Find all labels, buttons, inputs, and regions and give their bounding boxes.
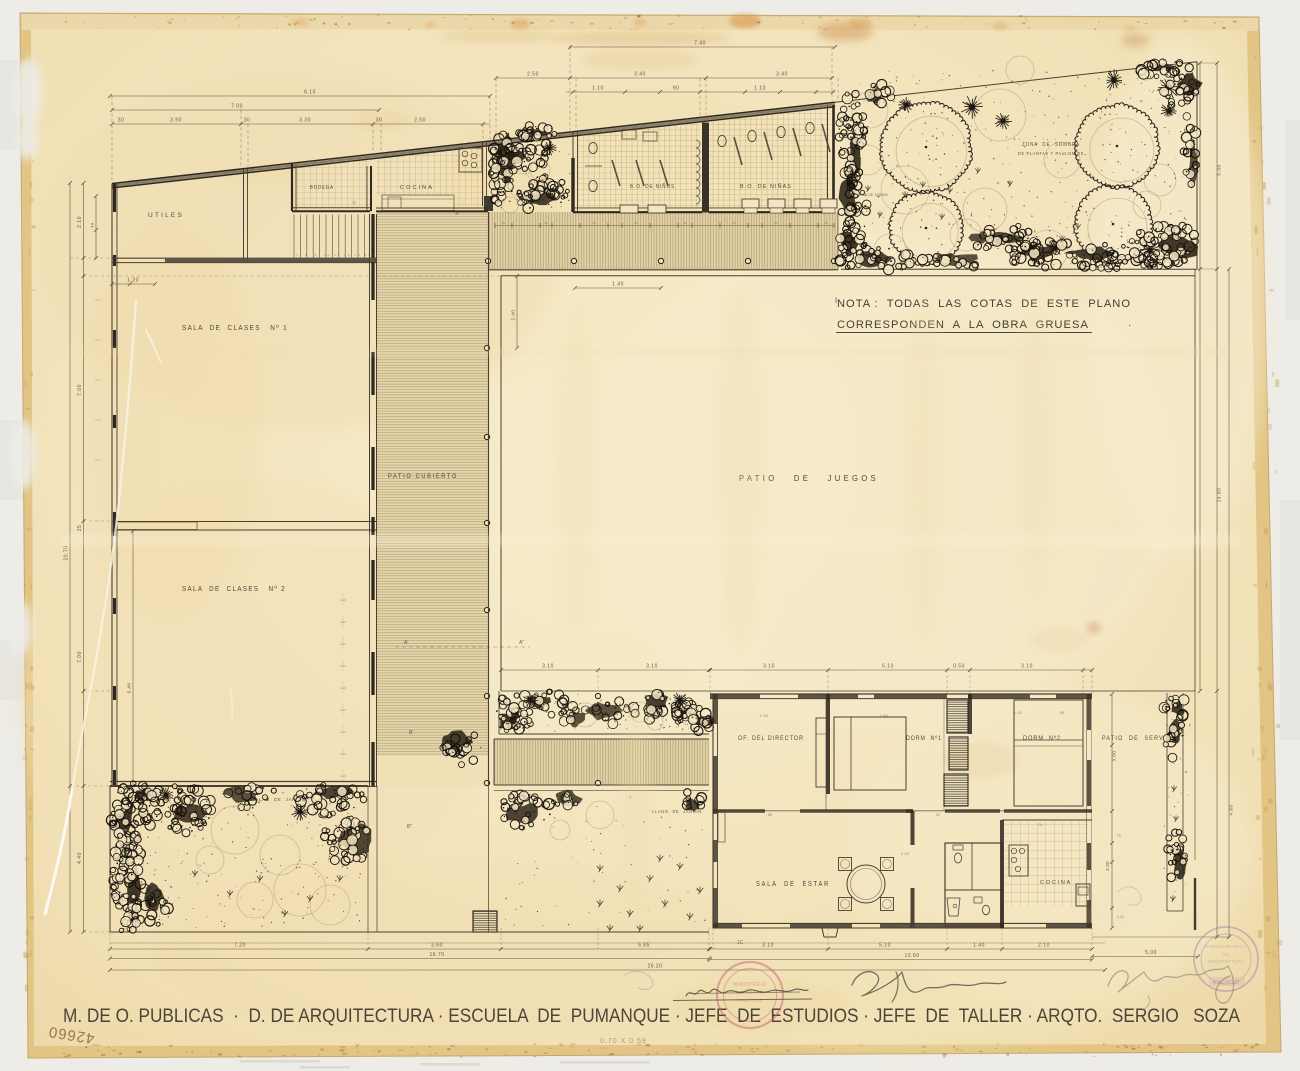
svg-text:3.60: 3.60 xyxy=(431,943,443,949)
svg-text:5.10: 5.10 xyxy=(882,664,894,670)
svg-text:92: 92 xyxy=(936,813,941,817)
svg-text:2.40: 2.40 xyxy=(901,852,909,856)
svg-text:3.40: 3.40 xyxy=(634,72,646,78)
svg-text:7 8 9 10 11 12 13 14: 7 8 9 10 11 12 13 14 xyxy=(296,253,372,257)
svg-text:ARCHIVO: ARCHIVO xyxy=(1213,980,1239,986)
svg-text:26.20: 26.20 xyxy=(647,964,662,970)
svg-text:3.10: 3.10 xyxy=(762,943,774,949)
svg-text:UTILES: UTILES xyxy=(148,212,184,219)
svg-text:SALA DE CLASES Nº 2: SALA DE CLASES Nº 2 xyxy=(182,586,286,593)
svg-text:7.00: 7.00 xyxy=(231,104,243,110)
svg-text:5.85: 5.85 xyxy=(638,943,650,949)
svg-text:SALA DE CLASES Nº 1: SALA DE CLASES Nº 1 xyxy=(182,325,288,332)
svg-text:B.O. DE NIÑAS: B.O. DE NIÑAS xyxy=(740,183,792,190)
svg-text:SALA DE ESTAR: SALA DE ESTAR xyxy=(756,881,830,888)
svg-text:0.70 X 0.59: 0.70 X 0.59 xyxy=(600,1038,647,1045)
svg-text:1.20: 1.20 xyxy=(127,278,139,284)
svg-text:5.40: 5.40 xyxy=(127,683,132,694)
svg-text:A': A' xyxy=(404,640,408,646)
svg-text:COCINA: COCINA xyxy=(1040,880,1072,886)
svg-text:DORM Nº2: DORM Nº2 xyxy=(1023,735,1061,742)
svg-text:NOTA : TODAS LAS COTAS DE: NOTA : TODAS LAS COTAS DE ESTE PLANO xyxy=(837,298,1131,310)
svg-text:PATIO CUBIERTO: PATIO CUBIERTO xyxy=(388,474,458,480)
svg-text:DE PLANTAS Y PAULONIOS: DE PLANTAS Y PAULONIOS xyxy=(1018,151,1084,156)
svg-text:10.60: 10.60 xyxy=(904,953,919,959)
svg-text:5.00: 5.00 xyxy=(1217,164,1223,175)
svg-text:B.O. DE NIÑOS: B.O. DE NIÑOS xyxy=(630,183,675,190)
svg-text:0.50: 0.50 xyxy=(953,664,965,670)
svg-text:B': B' xyxy=(409,730,413,736)
svg-text:7.00: 7.00 xyxy=(77,651,83,663)
svg-text:3.10: 3.10 xyxy=(542,664,554,670)
svg-text:1.60: 1.60 xyxy=(880,714,888,718)
svg-text:3.10: 3.10 xyxy=(1021,664,1033,670)
svg-text:1.40: 1.40 xyxy=(1014,711,1022,715)
svg-text:4.60: 4.60 xyxy=(1229,804,1235,815)
svg-text:7.00: 7.00 xyxy=(77,384,83,396)
svg-text:16.70: 16.70 xyxy=(429,952,444,958)
svg-text:3.30: 3.30 xyxy=(299,118,311,124)
svg-text:1.50: 1.50 xyxy=(760,714,768,718)
svg-text:3.40: 3.40 xyxy=(776,72,788,78)
svg-text:DIRECCION GRAL.: DIRECCION GRAL. xyxy=(1205,944,1247,949)
svg-text:30: 30 xyxy=(118,118,125,124)
svg-text:5.00: 5.00 xyxy=(1145,950,1157,956)
svg-text:75: 75 xyxy=(352,201,356,205)
svg-text:4.40: 4.40 xyxy=(77,852,83,864)
svg-text:PATIO DE JUEGOS: PATIO DE JUEGOS xyxy=(739,474,879,483)
svg-text:A'': A'' xyxy=(519,640,524,646)
svg-text:30: 30 xyxy=(376,118,383,124)
svg-text:1.16: 1.16 xyxy=(1117,915,1124,919)
svg-text:5.10: 5.10 xyxy=(879,943,891,949)
svg-text:B'': B'' xyxy=(407,824,412,830)
svg-text:ARQUITECTURA: ARQUITECTURA xyxy=(1208,959,1245,964)
svg-text:90: 90 xyxy=(673,86,680,92)
svg-text:3.00: 3.00 xyxy=(1105,861,1110,871)
svg-text:70: 70 xyxy=(1117,834,1121,838)
svg-text:·: · xyxy=(1128,320,1131,331)
svg-text:CORRESPONDEN A LA OBRA GRU: CORRESPONDEN A LA OBRA GRUESA xyxy=(837,319,1089,331)
svg-text:85: 85 xyxy=(768,813,773,817)
svg-text:2.50: 2.50 xyxy=(414,118,426,124)
svg-text:20.70: 20.70 xyxy=(64,545,70,560)
svg-text:2.10: 2.10 xyxy=(77,216,83,228)
svg-text:1.10: 1.10 xyxy=(754,86,766,92)
svg-text:25: 25 xyxy=(77,525,83,532)
svg-text:3.00: 3.00 xyxy=(1111,751,1116,762)
svg-text:49: 49 xyxy=(90,222,95,228)
svg-text:2.40: 2.40 xyxy=(511,310,516,321)
svg-text:COCINA: COCINA xyxy=(400,185,434,191)
svg-text:6.10: 6.10 xyxy=(304,90,316,96)
svg-text:45: 45 xyxy=(455,212,459,216)
svg-text:7.40: 7.40 xyxy=(694,41,706,47)
svg-text:3.10: 3.10 xyxy=(646,664,658,670)
svg-text:1C: 1C xyxy=(737,940,744,946)
svg-text:3.90: 3.90 xyxy=(170,118,182,124)
svg-text:MINISTERIO: MINISTERIO xyxy=(733,982,767,988)
svg-text:2.10: 2.10 xyxy=(1038,943,1050,949)
svg-text:1.10: 1.10 xyxy=(592,86,604,92)
svg-text:75: 75 xyxy=(1038,823,1043,827)
svg-text:30: 30 xyxy=(244,118,251,124)
svg-text:PUBLICAS: PUBLICAS xyxy=(737,998,763,1003)
svg-text:OF. DEL DIRECTOR: OF. DEL DIRECTOR xyxy=(738,736,804,742)
svg-text:M. DE O. PUBLICAS · D. DE AR: M. DE O. PUBLICAS · D. DE ARQUITECTURA ·… xyxy=(63,1005,1240,1027)
svg-text:DE: DE xyxy=(1223,952,1229,957)
svg-text:2.50: 2.50 xyxy=(527,72,539,78)
svg-text:3.10: 3.10 xyxy=(763,664,775,670)
svg-text:1.40: 1.40 xyxy=(973,943,985,949)
svg-text:7.20: 7.20 xyxy=(234,943,246,949)
svg-text:24.00: 24.00 xyxy=(1217,488,1223,503)
svg-text:DORM Nº1: DORM Nº1 xyxy=(906,735,942,742)
svg-text:1.40: 1.40 xyxy=(612,282,624,288)
svg-text:95: 95 xyxy=(1060,711,1065,715)
svg-text:BODEGA: BODEGA xyxy=(310,185,334,191)
